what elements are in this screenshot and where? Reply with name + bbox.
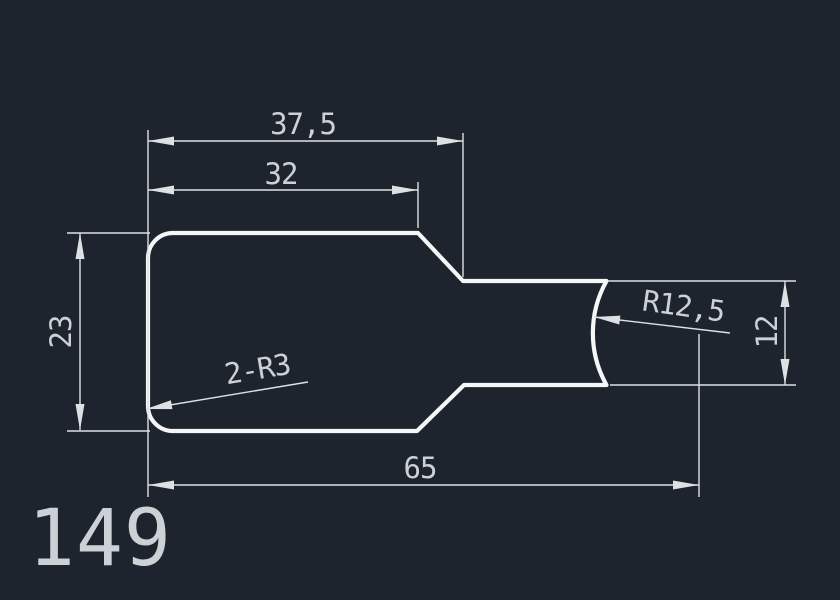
arrowhead-left [148,137,174,146]
arrowhead-down [76,404,85,430]
arrowhead-down [781,359,790,385]
fillet-note-value: 2-R3 [222,347,293,391]
arrowhead-left [148,186,174,195]
arrowhead-up [76,233,85,259]
leader-fillet-note[interactable]: 2-R3 [145,347,308,414]
arrowhead-right [392,186,418,195]
arrowhead-radius [593,313,620,325]
dimension-total-length[interactable]: 65 [148,451,699,490]
dimension-top-width[interactable]: 37,5 [148,107,463,146]
dimension-step-width[interactable]: 32 [148,157,418,195]
dimension-total-length-value: 65 [404,451,437,485]
leader-end-radius[interactable]: R12,5 [593,284,730,333]
part-geometry[interactable] [148,233,607,431]
dimension-left-height-value: 23 [44,316,78,349]
dimension-step-width-value: 32 [265,157,298,191]
part-number[interactable]: 149 [28,494,172,584]
arrowhead-up [781,281,790,307]
part-outline [148,233,607,431]
arrowhead-right [437,137,463,146]
dimension-top-width-value: 37,5 [270,107,336,141]
dimension-left-height[interactable]: 23 [44,233,150,431]
end-radius-value: R12,5 [640,284,726,329]
dimension-right-height-value: 12 [750,316,784,349]
dimension-right-height[interactable]: 12 [750,281,790,385]
arrowhead-left [148,481,174,490]
arrowhead-right [673,481,699,490]
drawing-canvas: 37,5 32 23 12 65 R12,5 2-R [0,0,840,600]
cad-drawing-view: 37,5 32 23 12 65 R12,5 2-R [0,0,840,600]
